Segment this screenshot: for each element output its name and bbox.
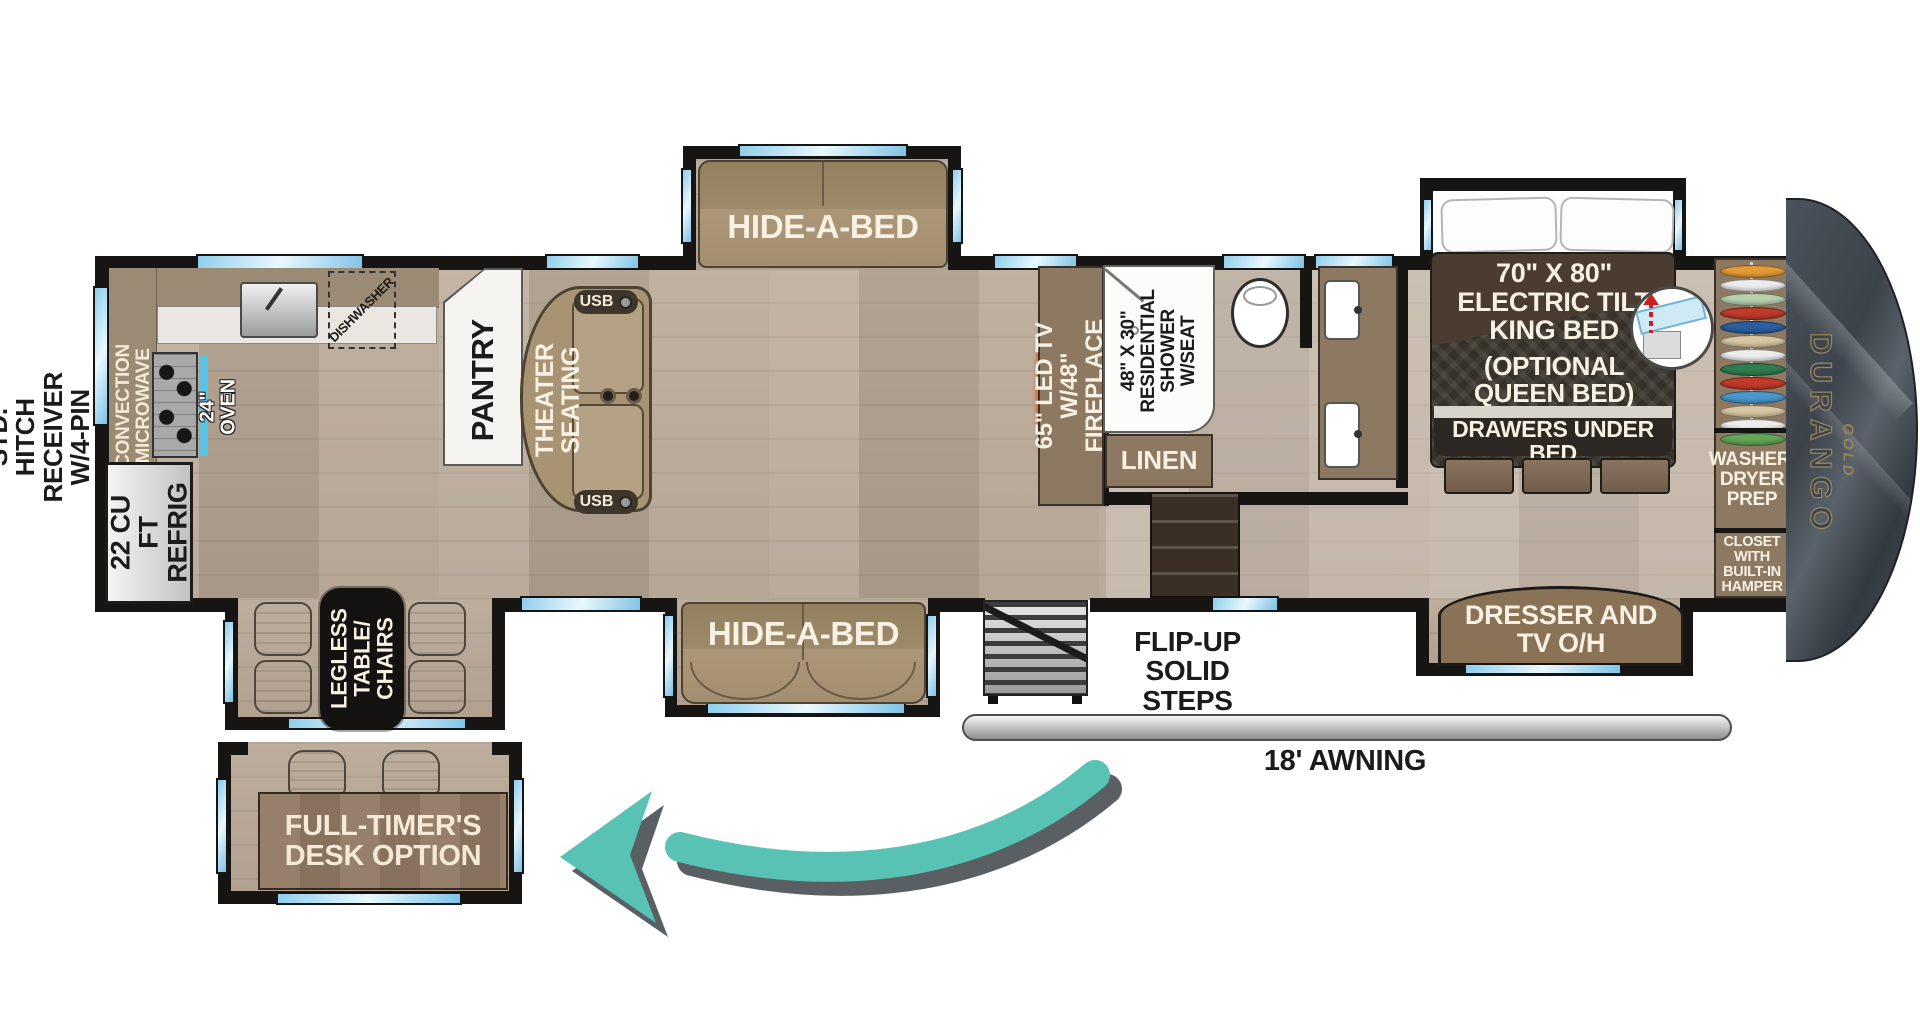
theater-seating-label: THEATER SEATING: [516, 300, 600, 500]
steps-foot: [1072, 696, 1082, 704]
wardrobe-divider-2: [1714, 528, 1790, 533]
window-bottom-sofa-right: [926, 614, 938, 698]
wall-bottom-3: [940, 598, 985, 612]
desk-chair-1: [288, 750, 346, 796]
window-pantry: [545, 254, 640, 270]
dinette-chair-3: [408, 602, 466, 656]
desk-room-wall-stub-right: [492, 742, 522, 755]
flip-up-steps: [983, 600, 1088, 696]
clothes-hanger-icon: [1720, 279, 1786, 292]
dinette-chair-2: [254, 660, 312, 714]
flip-up-steps-label: FLIP-UP SOLID STEPS: [1100, 638, 1275, 704]
rv-floorplan: STD. HITCH RECEIVER W/4-PIN HARNESS DISH…: [0, 0, 1920, 1024]
window-top-sofa-left: [681, 168, 693, 244]
pillow-right: [1559, 197, 1674, 254]
clothes-hanger-icon: [1720, 349, 1786, 362]
desk-room-wall-stub-left: [218, 742, 248, 755]
refrigerator-label: 22 CU FT REFRIG: [107, 466, 191, 600]
brand-sub-logo: GOLD: [1834, 396, 1862, 506]
clothes-hanger-icon: [1720, 363, 1786, 376]
drawers-under-bed-label: DRAWERS UNDER BED: [1428, 428, 1678, 454]
pillow-left: [1440, 196, 1557, 253]
clothes-hanger-icon: [1720, 335, 1786, 348]
window-top-sofa-slide: [738, 144, 908, 158]
clothes-hanger-icon: [1720, 307, 1786, 320]
clothes-hanger-icon: [1720, 391, 1786, 404]
toilet-seat: [1243, 286, 1277, 306]
dishwasher-label: DISHWASHER: [324, 275, 400, 345]
tilt-bed-base: [1643, 331, 1681, 359]
usb-outlet-icon: [619, 296, 632, 309]
window-bed-right: [1673, 198, 1684, 252]
usb-outlet-icon: [619, 496, 632, 509]
hitch-receiver-label: STD. HITCH RECEIVER W/4-PIN HARNESS: [10, 292, 96, 582]
wardrobe-divider-1: [1714, 428, 1790, 433]
faucet-icon: [1354, 430, 1362, 438]
window-dinette-left: [223, 620, 235, 704]
clothes-hanger-icon: [1720, 293, 1786, 306]
shower-label: 48" X 30" RESIDENTIAL SHOWER W/SEAT: [1108, 272, 1210, 430]
tilt-arrow-head-icon: [1643, 293, 1659, 305]
awning-label: 18' AWNING: [1240, 744, 1450, 778]
window-bottom-1: [520, 596, 642, 612]
window-bath-1: [1222, 254, 1306, 270]
cupholder-icon: [600, 388, 616, 404]
tilt-bed-diagram: [1630, 286, 1714, 370]
faucet-icon: [1354, 306, 1362, 314]
closet-hamper-label: CLOSET WITH BUILT-IN HAMPER: [1714, 534, 1790, 596]
legless-table-label: LEGLESS TABLE/ CHAIRS: [320, 592, 404, 726]
option-arrow: [530, 735, 1130, 1024]
clothes-hanger-icon: [1720, 405, 1786, 418]
window-top-sofa-right: [951, 168, 963, 244]
pantry-label: PANTRY: [445, 300, 521, 460]
desk-chair-2: [382, 750, 440, 796]
washer-dryer-label: WASHER/ DRYER PREP: [1714, 436, 1790, 524]
desk-option-label: FULL-TIMER'S DESK OPTION: [258, 792, 508, 890]
window-desk-left: [216, 778, 228, 874]
steps-foot: [988, 696, 998, 704]
microwave-label: CONVECTION MICROWAVE: [112, 338, 156, 474]
oven-label: 24" OVEN: [202, 352, 236, 462]
tv-fireplace-label: 65" LED TV W/48" FIREPLACE: [1034, 270, 1106, 502]
bed-drawer-2: [1522, 458, 1592, 494]
clothes-hanger-icon: [1720, 321, 1786, 334]
window-desk-bottom: [276, 892, 462, 905]
cupholder-icon: [626, 388, 642, 404]
dresser-label: DRESSER AND TV O/H: [1438, 596, 1684, 662]
hide-a-bed-bottom-label: HIDE-A-BED: [681, 608, 926, 660]
stove-cooktop: [152, 352, 198, 458]
clothes-hanger-icon: [1720, 265, 1786, 278]
window-bottom-2: [1211, 596, 1279, 612]
clothes-hangers: [1720, 264, 1784, 428]
bed-drawer-3: [1600, 458, 1670, 494]
window-bed-left: [1422, 198, 1433, 252]
window-bottom-sofa-left: [663, 614, 675, 698]
interior-steps: [1150, 492, 1240, 598]
dinette-chair-1: [254, 602, 312, 656]
window-dresser-slide: [1464, 663, 1622, 675]
queen-bed-option-label: (OPTIONAL QUEEN BED): [1434, 352, 1674, 408]
linen-label: LINEN: [1105, 434, 1213, 488]
hide-a-bed-top-label: HIDE-A-BED: [698, 198, 948, 256]
tilt-arrow-dashes: [1649, 303, 1653, 333]
dinette-chair-4: [408, 660, 466, 714]
window-desk-right: [512, 778, 524, 874]
wall-bottom-5: [1693, 598, 1795, 612]
clothes-hanger-icon: [1720, 377, 1786, 390]
bed-drawer-1: [1444, 458, 1514, 494]
window-rear-wall: [93, 286, 109, 426]
steps-rail: [983, 600, 1088, 679]
wall-bathroom-bottom-b: [1238, 492, 1408, 505]
